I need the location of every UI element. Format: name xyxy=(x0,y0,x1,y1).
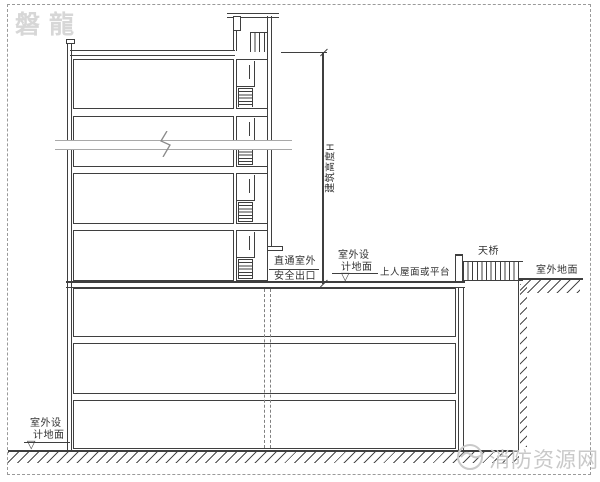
design-ground-left-line1: 室外设 xyxy=(30,418,62,429)
dimension-extension-line xyxy=(281,52,327,53)
stair-steps xyxy=(238,259,253,279)
stair-steps xyxy=(238,88,253,108)
exit-label-line2: 安全出口 xyxy=(274,271,316,282)
tower-left-wall xyxy=(67,40,72,452)
tower-room-3 xyxy=(73,173,234,224)
stair-steps xyxy=(238,202,253,222)
exit-label-line1: 直通室外 xyxy=(274,256,316,267)
podium-room-2 xyxy=(73,343,456,395)
podium-room-1 xyxy=(73,288,456,337)
break-zigzag xyxy=(156,131,176,157)
platform-slab xyxy=(66,281,465,288)
earth-cut-hatch xyxy=(520,284,527,447)
design-ground-mid-underline xyxy=(332,273,378,274)
tower-room-4 xyxy=(73,230,234,281)
tower-room-1 xyxy=(73,59,234,109)
stair-flight-edge xyxy=(254,175,255,200)
roof-platform-label: 上人屋面或平台 xyxy=(380,267,450,278)
ground-hatch-lower xyxy=(8,452,519,463)
exit-leader-line xyxy=(269,269,319,270)
tower-wall-projection-dashed xyxy=(264,289,265,448)
bulkhead-door-head xyxy=(233,16,242,31)
watermark-bottom-right: 消防资源网 xyxy=(489,444,599,474)
stair-handrail xyxy=(249,179,250,193)
parapet-cap xyxy=(66,39,75,44)
stair-handrail xyxy=(249,236,250,250)
level-symbol-left: ▽ xyxy=(27,440,36,451)
stair-flight-edge xyxy=(254,232,255,257)
stair-handrail xyxy=(249,65,250,79)
podium-right-wall xyxy=(458,287,465,451)
stair-handrail xyxy=(249,122,250,136)
dimension-line xyxy=(322,52,323,284)
outdoor-ground-label: 室外地面 xyxy=(536,265,578,276)
bulkhead-stair-railing xyxy=(250,32,268,52)
watermark-top-left: 磐龍 xyxy=(15,5,83,41)
ground-hatch-upper xyxy=(520,280,580,293)
level-symbol-mid: ▽ xyxy=(341,272,350,283)
stair-flight-edge xyxy=(254,61,255,86)
design-ground-left-line2: 计地面 xyxy=(33,430,65,441)
exit-canopy xyxy=(266,246,284,252)
design-ground-mid-line1: 室外设 xyxy=(338,250,370,261)
building-height-label: 建筑高度H xyxy=(326,143,337,193)
building-section-diagram: 磐龍 xyxy=(0,0,600,482)
bridge-post xyxy=(455,254,463,282)
podium-room-3 xyxy=(73,400,456,449)
fire-dragon-logo xyxy=(455,441,489,473)
tower-wall-projection-dashed xyxy=(270,289,271,448)
bridge-railing xyxy=(463,261,523,281)
bridge-label: 天桥 xyxy=(478,246,499,257)
main-roof-slab xyxy=(70,50,235,56)
